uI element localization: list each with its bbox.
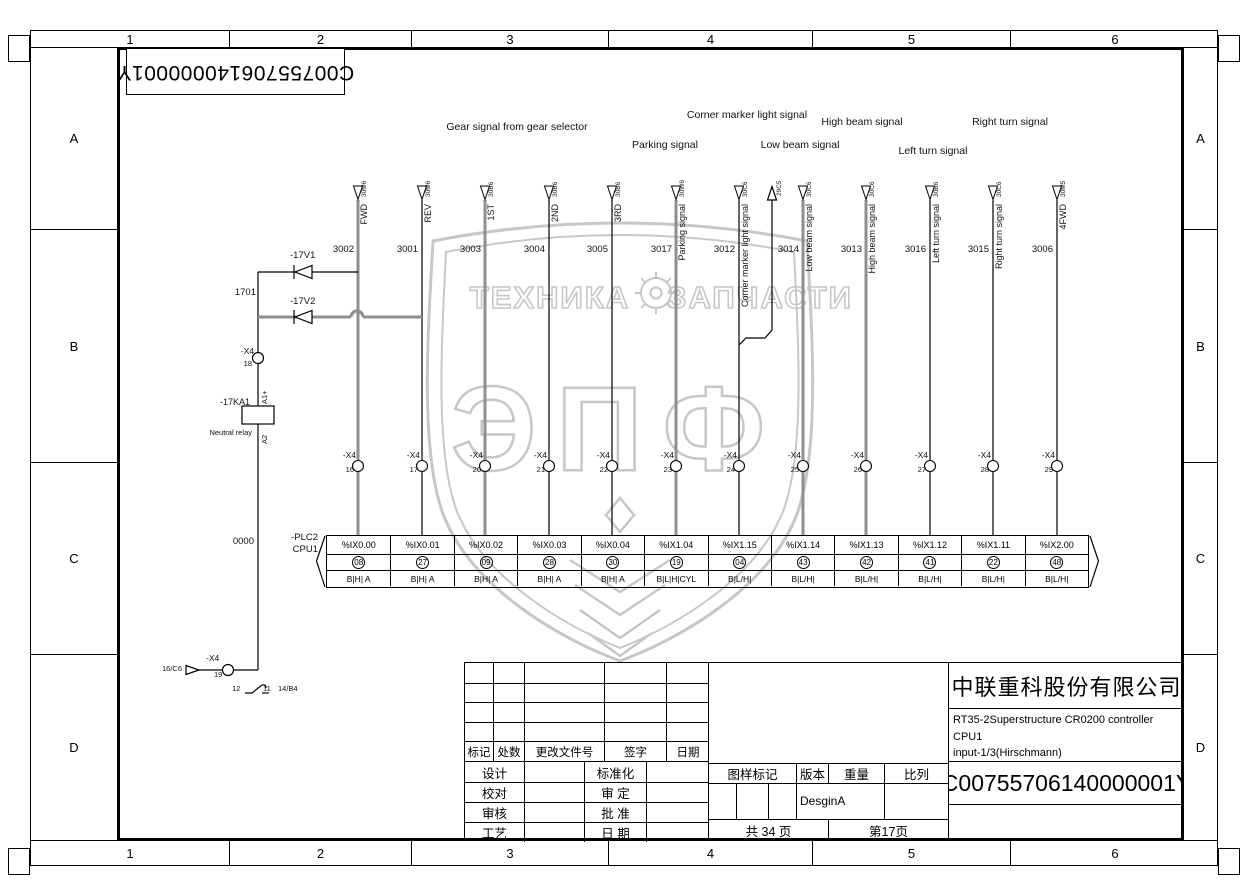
plc-pin-cell: 19 [644, 555, 707, 571]
plc-pin-cell: 04 [708, 555, 771, 571]
wire-ref-label: 30B6 [933, 182, 940, 197]
relay-coil-symbol [242, 406, 274, 424]
terminal-circle [988, 461, 999, 472]
plc-address: %IX0.03 [517, 536, 580, 555]
wire-number: 3005 [550, 245, 608, 255]
terminal-pin: 19 [214, 671, 222, 679]
terminal-circle [734, 461, 745, 472]
signal-name-label: FWD [360, 204, 370, 225]
signature-label: 设计 [465, 762, 524, 782]
terminal-circle [544, 461, 555, 472]
plc-pin-number: 04 [733, 556, 746, 569]
terminal-pin: 25 [759, 466, 799, 474]
empty-cell [709, 784, 736, 819]
plc-channel-type: B|H| A [454, 571, 517, 586]
wire-ref-label: 30M6 [425, 181, 432, 197]
terminal-label: -X4 [886, 451, 928, 460]
signal-name-label: 2ND [551, 204, 561, 222]
signal-name-label: 4FWD [1059, 204, 1069, 230]
plc-pin-number: 22 [987, 556, 1000, 569]
empty-cell [736, 784, 768, 819]
signal-name-label: 3RD [614, 204, 624, 222]
stamp-header: 重量 [828, 764, 884, 783]
empty-cell [465, 702, 493, 722]
revision-header: 签字 [604, 741, 666, 761]
plc-pin-number: 42 [860, 556, 873, 569]
plc-pin-cell: 27 [390, 555, 453, 571]
empty-cell [524, 683, 604, 703]
stamp-header: 图样标记 [709, 764, 796, 783]
terminal-pin: 21 [505, 466, 545, 474]
plc-address: %IX1.13 [834, 536, 897, 555]
wire-ref-label: 30C6 [742, 181, 749, 197]
terminal-pin: 26 [822, 466, 862, 474]
relay-contact-symbol [245, 685, 262, 693]
terminal-circle [861, 461, 872, 472]
signal-name-label: Low beam signal [805, 204, 815, 272]
plc-pin-cell: 22 [961, 555, 1024, 571]
wire-number: 3001 [360, 245, 418, 255]
wire-number: 3013 [804, 245, 862, 255]
plc-pin-number: 19 [670, 556, 683, 569]
relay-description: Neutral relay [180, 429, 252, 437]
drawing-title-line1: RT35-2Superstructure CR0200 controller C… [953, 712, 1180, 745]
signature-table: 设计标准化校对审 定审核批 准工艺日 期 [465, 761, 709, 841]
empty-cell [465, 663, 493, 683]
wire-ref-label: 30C6 [869, 181, 876, 197]
wire-ref-label: 30C6 [996, 181, 1003, 197]
page-reference: 16/C6 [145, 665, 182, 673]
terminal-pin: 18 [212, 360, 252, 368]
terminal-circle [925, 461, 936, 472]
plc-pin-cell: 42 [834, 555, 897, 571]
terminal-pin: 24 [695, 466, 735, 474]
revision-header: 处数 [493, 741, 524, 761]
signal-name-label: Corner marker light signal [741, 204, 751, 307]
wire-ref-label: 30M6 [361, 181, 368, 197]
brace-right [1090, 536, 1099, 587]
wire-number: 3004 [487, 245, 545, 255]
terminal-label: -X4 [441, 451, 483, 460]
terminal-circle [417, 461, 428, 472]
empty-cell [884, 784, 948, 819]
terminal-label: -X4 [206, 654, 232, 663]
plc-pin-cell: 41 [898, 555, 961, 571]
empty-cell [524, 762, 584, 782]
signal-group-label: Corner marker light signal [687, 110, 807, 122]
plc-channel-type: B|H| A [517, 571, 580, 586]
wire-number: 3016 [868, 245, 926, 255]
signature-label: 批 准 [584, 802, 646, 822]
terminal-circle [480, 461, 491, 472]
signature-label: 审 定 [584, 782, 646, 802]
terminal-label: -X4 [568, 451, 610, 460]
terminal-circle [223, 665, 234, 676]
empty-cell [948, 804, 1184, 841]
terminal-circle [1052, 461, 1063, 472]
wire-number: 3017 [614, 245, 672, 255]
diode-17V2-icon [295, 311, 312, 324]
wire-ref-label: 30C6 [806, 181, 813, 197]
terminal-label: -X4 [759, 451, 801, 460]
stamp-value-row: DesginA [709, 784, 948, 819]
wire-number: 1701 [214, 288, 256, 298]
plc-pin-number: 43 [797, 556, 810, 569]
signal-name-label: High beam signal [868, 204, 878, 274]
plc-pin-cell: 43 [771, 555, 834, 571]
plc-pin-cell: 09 [454, 555, 517, 571]
terminal-circle [253, 353, 264, 364]
contact-pin: 11 [263, 685, 271, 693]
terminal-label: -X4 [822, 451, 864, 460]
terminal-pin: 23 [632, 466, 672, 474]
plc-address: %IX0.02 [454, 536, 517, 555]
stamp-header-row: 图样标记 版本 重量 比列 [709, 764, 948, 784]
stamp-header: 比列 [884, 764, 948, 783]
signature-label: 工艺 [465, 822, 524, 842]
contact-pin: 12 [232, 685, 240, 693]
empty-cell [465, 722, 493, 742]
empty-cell [493, 722, 524, 742]
signature-label: 校对 [465, 782, 524, 802]
signal-name-label: Right turn signal [995, 204, 1005, 269]
plc-address: %IX0.01 [390, 536, 453, 555]
revision-header: 更改文件号 [524, 741, 604, 761]
title-block: 标记处数更改文件号签字日期 设计标准化校对审 定审核批 准工艺日 期 图样标记 … [464, 662, 1183, 840]
terminal-pin: 20 [441, 466, 481, 474]
plc-channel-type: B|L/H| [771, 571, 834, 586]
empty-cell [604, 683, 666, 703]
plc-channel-type: B|L/H| [1025, 571, 1088, 586]
page-current: 第17页 [828, 820, 948, 841]
stamp-header: 版本 [796, 764, 828, 783]
wire-ref-label: 30B6 [615, 182, 622, 197]
diode-label: -17V2 [290, 297, 315, 307]
plc-channel-type: B|L/H| [898, 571, 961, 586]
empty-cell [604, 663, 666, 683]
diode-label: -17V1 [290, 251, 315, 261]
plc-pin-number: 41 [923, 556, 936, 569]
signal-group-label: Parking signal [632, 140, 698, 152]
plc-pin-cell: 30 [581, 555, 644, 571]
plc-device-label: -PLC2 [270, 533, 318, 543]
coil-terminal-label: A2 [261, 435, 269, 444]
diode-17V1-icon [295, 266, 312, 279]
plc-address: %IX1.15 [708, 536, 771, 555]
empty-cell [604, 722, 666, 742]
plc-pin-number: 30 [606, 556, 619, 569]
signature-label: 审核 [465, 802, 524, 822]
empty-cell [524, 782, 584, 802]
empty-cell [646, 802, 709, 822]
signature-label: 标准化 [584, 762, 646, 782]
terminal-pin: 27 [886, 466, 926, 474]
drawing-sheet: ТЕХНИКА ЗАПЧАСТИ ЭПФ 123456 123456 ABCD … [0, 0, 1248, 895]
coil-terminal-label: A1+ [261, 390, 269, 404]
empty-cell [465, 683, 493, 703]
empty-cell [604, 702, 666, 722]
signal-group-label: High beam signal [821, 117, 902, 129]
revision-header: 日期 [666, 741, 709, 761]
terminal-label: -X4 [378, 451, 420, 460]
plc-channel-type: B|L/H| [708, 571, 771, 586]
wire-ref-label: 30W6 [679, 180, 686, 197]
source-arrow-icon [186, 666, 199, 675]
plc-cpu-label: CPU1 [270, 545, 318, 555]
signal-name-label: 1ST [487, 204, 497, 221]
terminal-label: -X4 [695, 451, 737, 460]
wire-ref-label: 29C5 [776, 180, 783, 196]
terminal-label: -X4 [949, 451, 991, 460]
wire-ref-label: 30M5 [1060, 181, 1067, 197]
empty-cell [524, 822, 584, 842]
wire-ref-label: 30B6 [552, 182, 559, 197]
empty-cell [493, 663, 524, 683]
neutral-relay-circuit [186, 265, 422, 693]
wire-number: 3015 [931, 245, 989, 255]
plc-address: %IX2.00 [1025, 536, 1088, 555]
wire-number: 3003 [423, 245, 481, 255]
terminal-pin: 29 [1013, 466, 1053, 474]
terminal-label: -X4 [505, 451, 547, 460]
plc-channel-type: B|H| A [581, 571, 644, 586]
revision-table: 标记处数更改文件号签字日期 [465, 663, 709, 761]
plc-channel-type: B|H| A [327, 571, 390, 586]
plc-channel-type: B|L|H|CYL [644, 571, 707, 586]
terminal-pin: 17 [378, 466, 418, 474]
terminal-label: -X4 [1013, 451, 1055, 460]
wire-number: 3014 [741, 245, 799, 255]
empty-cell [646, 822, 709, 842]
drawing-title-line2: input-1/3(Hirschmann) [953, 745, 1180, 762]
empty-cell [493, 702, 524, 722]
plc-channel-type: B|H| A [390, 571, 453, 586]
empty-cell [524, 663, 604, 683]
terminal-circle [798, 461, 809, 472]
empty-cell [524, 802, 584, 822]
wire-number: 0000 [214, 537, 254, 547]
signal-group-label: Right turn signal [972, 117, 1048, 129]
page-reference: 14/B4 [278, 685, 298, 693]
terminal-circle [671, 461, 682, 472]
pages-total: 共 34 页 [709, 820, 828, 841]
drawing-title: RT35-2Superstructure CR0200 controller C… [948, 708, 1184, 761]
plc-pin-number: 08 [352, 556, 365, 569]
plc-address: %IX1.14 [771, 536, 834, 555]
plc-address: %IX0.04 [581, 536, 644, 555]
wire-number: 3012 [677, 245, 735, 255]
empty-cell [768, 784, 796, 819]
terminal-circle [353, 461, 364, 472]
signature-label: 日 期 [584, 822, 646, 842]
wire-ref-label: 30B6 [488, 182, 495, 197]
empty-cell [493, 683, 524, 703]
page-count-row: 共 34 页 第17页 [709, 819, 948, 841]
relay-label: -17KA1 [198, 398, 250, 408]
terminal-label: -X4 [314, 451, 356, 460]
empty-cell [524, 722, 604, 742]
terminal-pin: 28 [949, 466, 989, 474]
plc-input-table: %IX0.00%IX0.01%IX0.02%IX0.03%IX0.04%IX1.… [326, 535, 1089, 588]
empty-cell [524, 702, 604, 722]
signal-group-label: Low beam signal [761, 140, 840, 152]
empty-cell [666, 683, 709, 703]
wire-number: 3006 [995, 245, 1053, 255]
plc-channel-type: B|L/H| [834, 571, 897, 586]
company-name: 中联重科股份有限公司 [948, 663, 1184, 708]
plc-pin-number: 27 [416, 556, 429, 569]
empty-cell [666, 722, 709, 742]
empty-cell [666, 702, 709, 722]
signal-wires [353, 186, 1063, 535]
terminal-circle [607, 461, 618, 472]
terminal-label: -X4 [212, 347, 254, 356]
plc-address: %IX1.11 [961, 536, 1024, 555]
plc-pin-cell: 48 [1025, 555, 1088, 571]
version-value: DesginA [796, 784, 884, 819]
terminal-pin: 22 [568, 466, 608, 474]
terminal-label: -X4 [632, 451, 674, 460]
plc-pin-number: 48 [1050, 556, 1063, 569]
signal-group-label: Gear signal from gear selector [446, 122, 587, 134]
plc-pin-number: 28 [543, 556, 556, 569]
plc-channel-type: B|L/H| [961, 571, 1024, 586]
signal-group-label: Left turn signal [899, 146, 968, 158]
terminal-pin: 16 [314, 466, 354, 474]
empty-cell [666, 663, 709, 683]
signal-name-label: REV [424, 204, 434, 223]
empty-cell [646, 762, 709, 782]
plc-pin-cell: 08 [327, 555, 390, 571]
plc-address: %IX1.04 [644, 536, 707, 555]
plc-pin-number: 09 [480, 556, 493, 569]
plc-pin-cell: 28 [517, 555, 580, 571]
empty-cell [646, 782, 709, 802]
stamp-empty-area [709, 663, 948, 764]
drawing-number: C00755706140000001Y [948, 761, 1184, 804]
plc-address: %IX1.12 [898, 536, 961, 555]
revision-header: 标记 [465, 741, 493, 761]
plc-address: %IX0.00 [327, 536, 390, 555]
